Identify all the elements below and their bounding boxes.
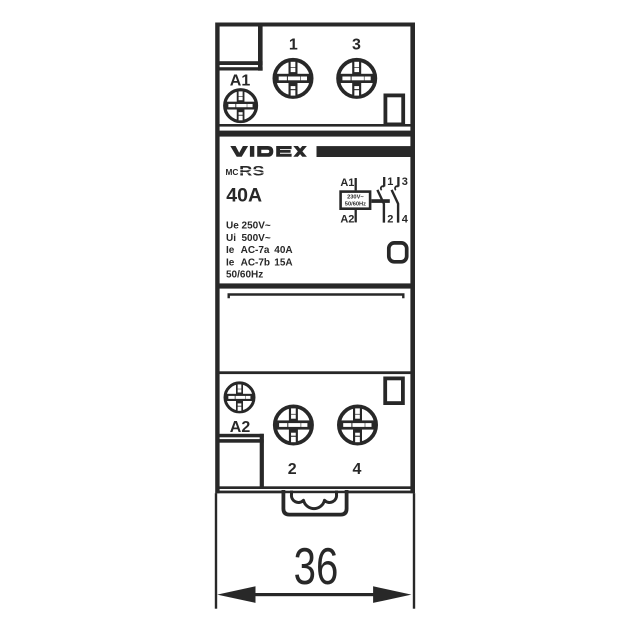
svg-text:RS: RS	[239, 163, 264, 179]
svg-text:50/60Hz: 50/60Hz	[345, 201, 366, 207]
svg-text:1: 1	[289, 37, 298, 54]
svg-text:A2: A2	[340, 214, 354, 226]
svg-text:MC: MC	[226, 167, 239, 177]
svg-text:A2: A2	[230, 419, 251, 436]
svg-text:4: 4	[353, 461, 362, 478]
svg-text:A1: A1	[340, 177, 354, 189]
svg-text:A1: A1	[230, 73, 251, 90]
svg-text:3: 3	[402, 176, 408, 188]
svg-text:2: 2	[288, 461, 297, 478]
svg-text:1: 1	[387, 176, 393, 188]
svg-text:Ue 250V~: Ue 250V~	[226, 220, 271, 231]
svg-text:230V~: 230V~	[347, 194, 364, 200]
svg-text:IeAC-7b15A: IeAC-7b15A	[226, 258, 293, 269]
svg-text:3: 3	[352, 37, 361, 54]
svg-text:2: 2	[387, 213, 393, 225]
svg-text:36: 36	[294, 537, 339, 595]
svg-text:Ui500V~: Ui500V~	[226, 233, 271, 244]
svg-text:4: 4	[402, 213, 409, 225]
svg-text:40A: 40A	[226, 184, 262, 206]
svg-text:50/60Hz: 50/60Hz	[226, 270, 263, 281]
svg-text:IeAC-7a40A: IeAC-7a40A	[226, 245, 293, 256]
